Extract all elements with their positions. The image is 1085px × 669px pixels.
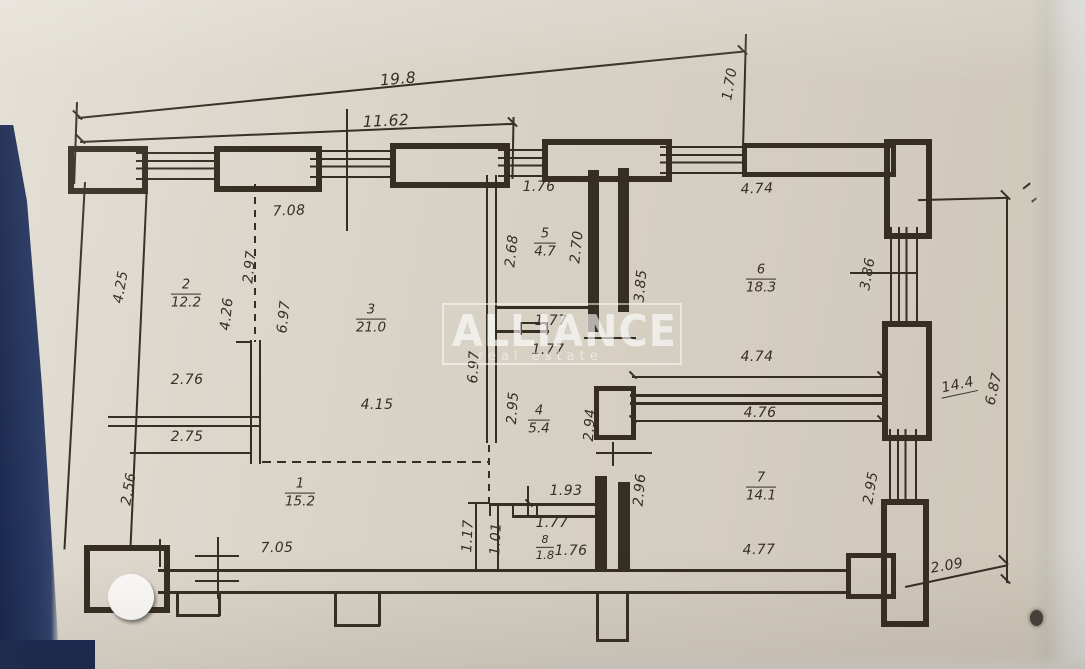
room-number: 1 bbox=[285, 478, 315, 494]
hole-punch bbox=[108, 574, 154, 620]
floorplan-photo: 19.8 11.62 7.08 1.76 4.74 1.77 1.77 2.76… bbox=[0, 0, 1085, 669]
wall-line bbox=[158, 569, 850, 572]
wall-line bbox=[108, 416, 261, 418]
dashed-wall bbox=[262, 461, 490, 463]
wall-line bbox=[158, 591, 850, 594]
room-number: 6 bbox=[746, 264, 776, 280]
room-area: 1.8 bbox=[536, 548, 554, 562]
wall-line bbox=[489, 503, 491, 516]
dim-top-right-side: 1.70 bbox=[719, 66, 740, 101]
room-area: 21.0 bbox=[356, 320, 386, 337]
room-area: 15.2 bbox=[285, 494, 315, 511]
wall-pier bbox=[882, 321, 932, 441]
dim-room7-top: 4.76 bbox=[744, 405, 777, 421]
room-label-6: 6 18.3 bbox=[746, 264, 776, 297]
dim-right-height: 6.87 bbox=[983, 371, 1006, 407]
dim-tick bbox=[217, 537, 219, 599]
dim-top-total: 19.8 bbox=[379, 68, 417, 89]
dim-tick bbox=[75, 134, 86, 145]
dim-room4-right: 2.94 bbox=[581, 408, 599, 442]
photo-bottom-edge bbox=[555, 653, 1085, 669]
wall-pier bbox=[542, 139, 672, 182]
dim-room7-left: 2.96 bbox=[631, 473, 650, 507]
dim-room4-left: 2.95 bbox=[504, 391, 522, 425]
dim-line-6-87 bbox=[1006, 197, 1008, 583]
wall-line bbox=[250, 340, 252, 432]
wall-stub bbox=[334, 624, 380, 627]
dim-room2-width: 2.76 bbox=[171, 372, 204, 388]
room-number: 8 bbox=[536, 534, 554, 548]
wall-segment bbox=[618, 482, 630, 572]
wall-line bbox=[489, 503, 601, 506]
wall-stub bbox=[378, 592, 381, 626]
window-symbol bbox=[889, 429, 917, 499]
room-number: 4 bbox=[528, 405, 550, 421]
wall-stub bbox=[596, 639, 629, 642]
wall-stub bbox=[176, 614, 220, 617]
dim-room6-top: 4.74 bbox=[740, 180, 773, 197]
room-area: 12.2 bbox=[171, 295, 201, 312]
dashed-wall bbox=[488, 445, 490, 505]
dim-room7-right: 2.95 bbox=[860, 470, 881, 505]
wall-line bbox=[250, 430, 252, 464]
wall-stub bbox=[626, 593, 629, 641]
dim-room6-right: 3.86 bbox=[857, 256, 878, 291]
dim-room5-top: 1.76 bbox=[523, 179, 556, 195]
dim-tick bbox=[195, 555, 239, 557]
photo-right-edge bbox=[1030, 0, 1085, 669]
dim-room8-top: 1.93 bbox=[550, 483, 583, 499]
dim-tick bbox=[596, 452, 652, 454]
dim-room8-left-outer: 1.17 bbox=[459, 519, 477, 553]
dim-room6-left: 3.85 bbox=[632, 269, 651, 303]
dim-room2-upper: 2.97 bbox=[240, 250, 259, 284]
dim-room8-width: 1.76 bbox=[555, 543, 588, 559]
dim-tick bbox=[195, 580, 239, 582]
dim-line-11-62 bbox=[80, 123, 514, 143]
wall-line bbox=[63, 182, 86, 550]
dim-tick bbox=[72, 110, 83, 121]
wall-line bbox=[108, 425, 261, 427]
dim-room3-width: 4.15 bbox=[361, 397, 394, 413]
wall-pier bbox=[390, 143, 510, 188]
dim-extension bbox=[346, 109, 348, 231]
wall-tick bbox=[236, 341, 252, 343]
room-number: 7 bbox=[746, 472, 776, 488]
wall-stub bbox=[334, 592, 337, 626]
room-number: 5 bbox=[534, 228, 556, 244]
window-symbol bbox=[310, 150, 390, 178]
dim-room8-left-inner: 1.01 bbox=[487, 522, 505, 556]
wall-line bbox=[512, 503, 514, 516]
wall-pier bbox=[846, 553, 896, 599]
dim-room5-left: 2.68 bbox=[502, 234, 521, 268]
room-area: 18.3 bbox=[746, 280, 776, 297]
room-label-4: 4 5.4 bbox=[528, 405, 550, 438]
watermark: ALLIANCE real estate bbox=[442, 303, 682, 365]
room-label-5: 5 4.7 bbox=[534, 228, 556, 261]
dim-room5-right: 2.70 bbox=[567, 230, 586, 264]
wall-segment bbox=[618, 168, 629, 312]
paper-stain bbox=[1030, 610, 1043, 626]
wall-line bbox=[630, 394, 884, 397]
wall-pier bbox=[884, 139, 932, 239]
photo-left-edge bbox=[0, 125, 60, 669]
room-label-7: 7 14.1 bbox=[746, 472, 776, 505]
photo-bottom-left-edge bbox=[0, 640, 95, 669]
dim-room2-top: 7.08 bbox=[272, 202, 305, 219]
dim-line bbox=[130, 452, 250, 454]
room-area: 14.1 bbox=[746, 488, 776, 505]
wall-tick bbox=[468, 502, 488, 504]
wall-segment bbox=[742, 143, 896, 177]
room-label-2: 2 12.2 bbox=[171, 279, 201, 312]
dim-line bbox=[632, 376, 884, 378]
room-number: 3 bbox=[356, 304, 386, 320]
dim-right-total: 14.4 bbox=[938, 373, 978, 398]
wall-stub bbox=[176, 592, 179, 616]
dim-room2-width-lower: 2.75 bbox=[171, 429, 204, 445]
watermark-subtitle: real estate bbox=[478, 349, 603, 364]
dim-top-partial: 11.62 bbox=[362, 111, 409, 131]
room-number: 2 bbox=[171, 279, 201, 295]
room-label-3: 3 21.0 bbox=[356, 304, 386, 337]
dim-room1-bottom: 7.05 bbox=[260, 540, 293, 557]
dim-left-upper: 4.25 bbox=[110, 269, 131, 304]
window-symbol bbox=[498, 149, 542, 177]
wall-stub bbox=[596, 593, 599, 641]
wall-pier bbox=[214, 146, 322, 192]
dim-room6-bottom: 4.74 bbox=[741, 349, 774, 365]
dim-left-lower: 2.56 bbox=[118, 471, 139, 506]
dim-tick bbox=[629, 371, 637, 379]
window-symbol bbox=[890, 227, 918, 321]
room-area: 5.4 bbox=[528, 421, 550, 438]
dim-room7-bottom: 4.77 bbox=[742, 542, 775, 559]
room-label-1: 1 15.2 bbox=[285, 478, 315, 511]
wall-line bbox=[259, 430, 261, 464]
dim-room8-mid: 1.77 bbox=[536, 515, 569, 531]
room-label-8: 8 1.8 bbox=[536, 534, 554, 562]
window-symbol bbox=[136, 152, 214, 180]
dim-tick bbox=[612, 442, 614, 466]
room-area: 4.7 bbox=[534, 244, 556, 261]
dim-tick bbox=[159, 539, 161, 567]
wall-line bbox=[259, 340, 261, 432]
dim-room2-height: 4.26 bbox=[217, 297, 236, 331]
dim-room3-left: 6.97 bbox=[274, 300, 293, 334]
window-symbol bbox=[660, 146, 742, 174]
wall-segment bbox=[595, 476, 607, 572]
